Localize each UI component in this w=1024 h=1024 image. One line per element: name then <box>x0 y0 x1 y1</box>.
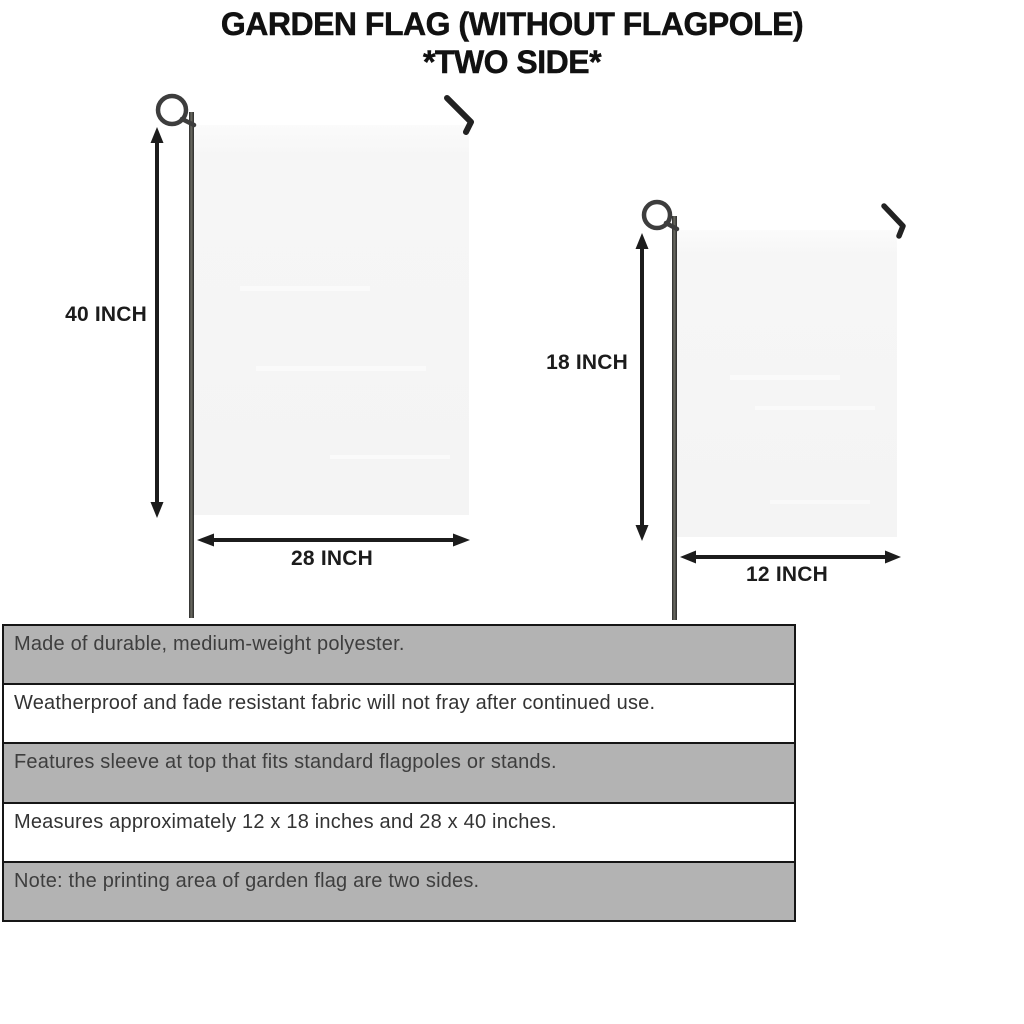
feature-row-note: Note: the printing area of garden flag a… <box>4 861 794 920</box>
small-width-arrow <box>680 551 901 564</box>
small-height-label: 18 INCH <box>505 351 628 375</box>
features-table: Made of durable, medium-weight polyester… <box>2 624 796 922</box>
large-flag-canvas <box>194 125 469 515</box>
small-width-label: 12 INCH <box>677 563 897 587</box>
large-hook-icon <box>447 98 471 132</box>
large-height-arrow <box>151 127 164 518</box>
large-width-label: 28 INCH <box>198 547 466 571</box>
small-flag-diagram <box>636 202 904 620</box>
small-flag-sheen <box>730 375 875 504</box>
page-title-line1: GARDEN FLAG (WITHOUT FLAGPOLE) <box>0 6 1024 44</box>
small-hook-icon <box>884 206 903 236</box>
large-pole-loop-icon <box>158 96 194 125</box>
page-title: GARDEN FLAG (WITHOUT FLAGPOLE) *TWO SIDE… <box>0 6 1024 82</box>
small-flag-canvas <box>677 230 897 537</box>
large-flagpole <box>189 112 194 618</box>
large-flag-sheen <box>240 286 450 459</box>
small-pole-loop-icon <box>644 202 677 229</box>
small-height-arrow <box>636 233 649 541</box>
garden-flag-infographic: GARDEN FLAG (WITHOUT FLAGPOLE) *TWO SIDE… <box>0 0 1024 1024</box>
large-flag-diagram <box>151 96 472 618</box>
feature-row-material: Made of durable, medium-weight polyester… <box>4 626 794 683</box>
large-height-label: 40 INCH <box>20 303 147 327</box>
large-width-arrow <box>197 534 470 547</box>
page-title-line2: *TWO SIDE* <box>0 44 1024 82</box>
feature-row-sleeve: Features sleeve at top that fits standar… <box>4 742 794 801</box>
feature-row-weatherproof: Weatherproof and fade resistant fabric w… <box>4 683 794 742</box>
feature-row-measures: Measures approximately 12 x 18 inches an… <box>4 802 794 861</box>
small-flagpole <box>672 216 677 620</box>
